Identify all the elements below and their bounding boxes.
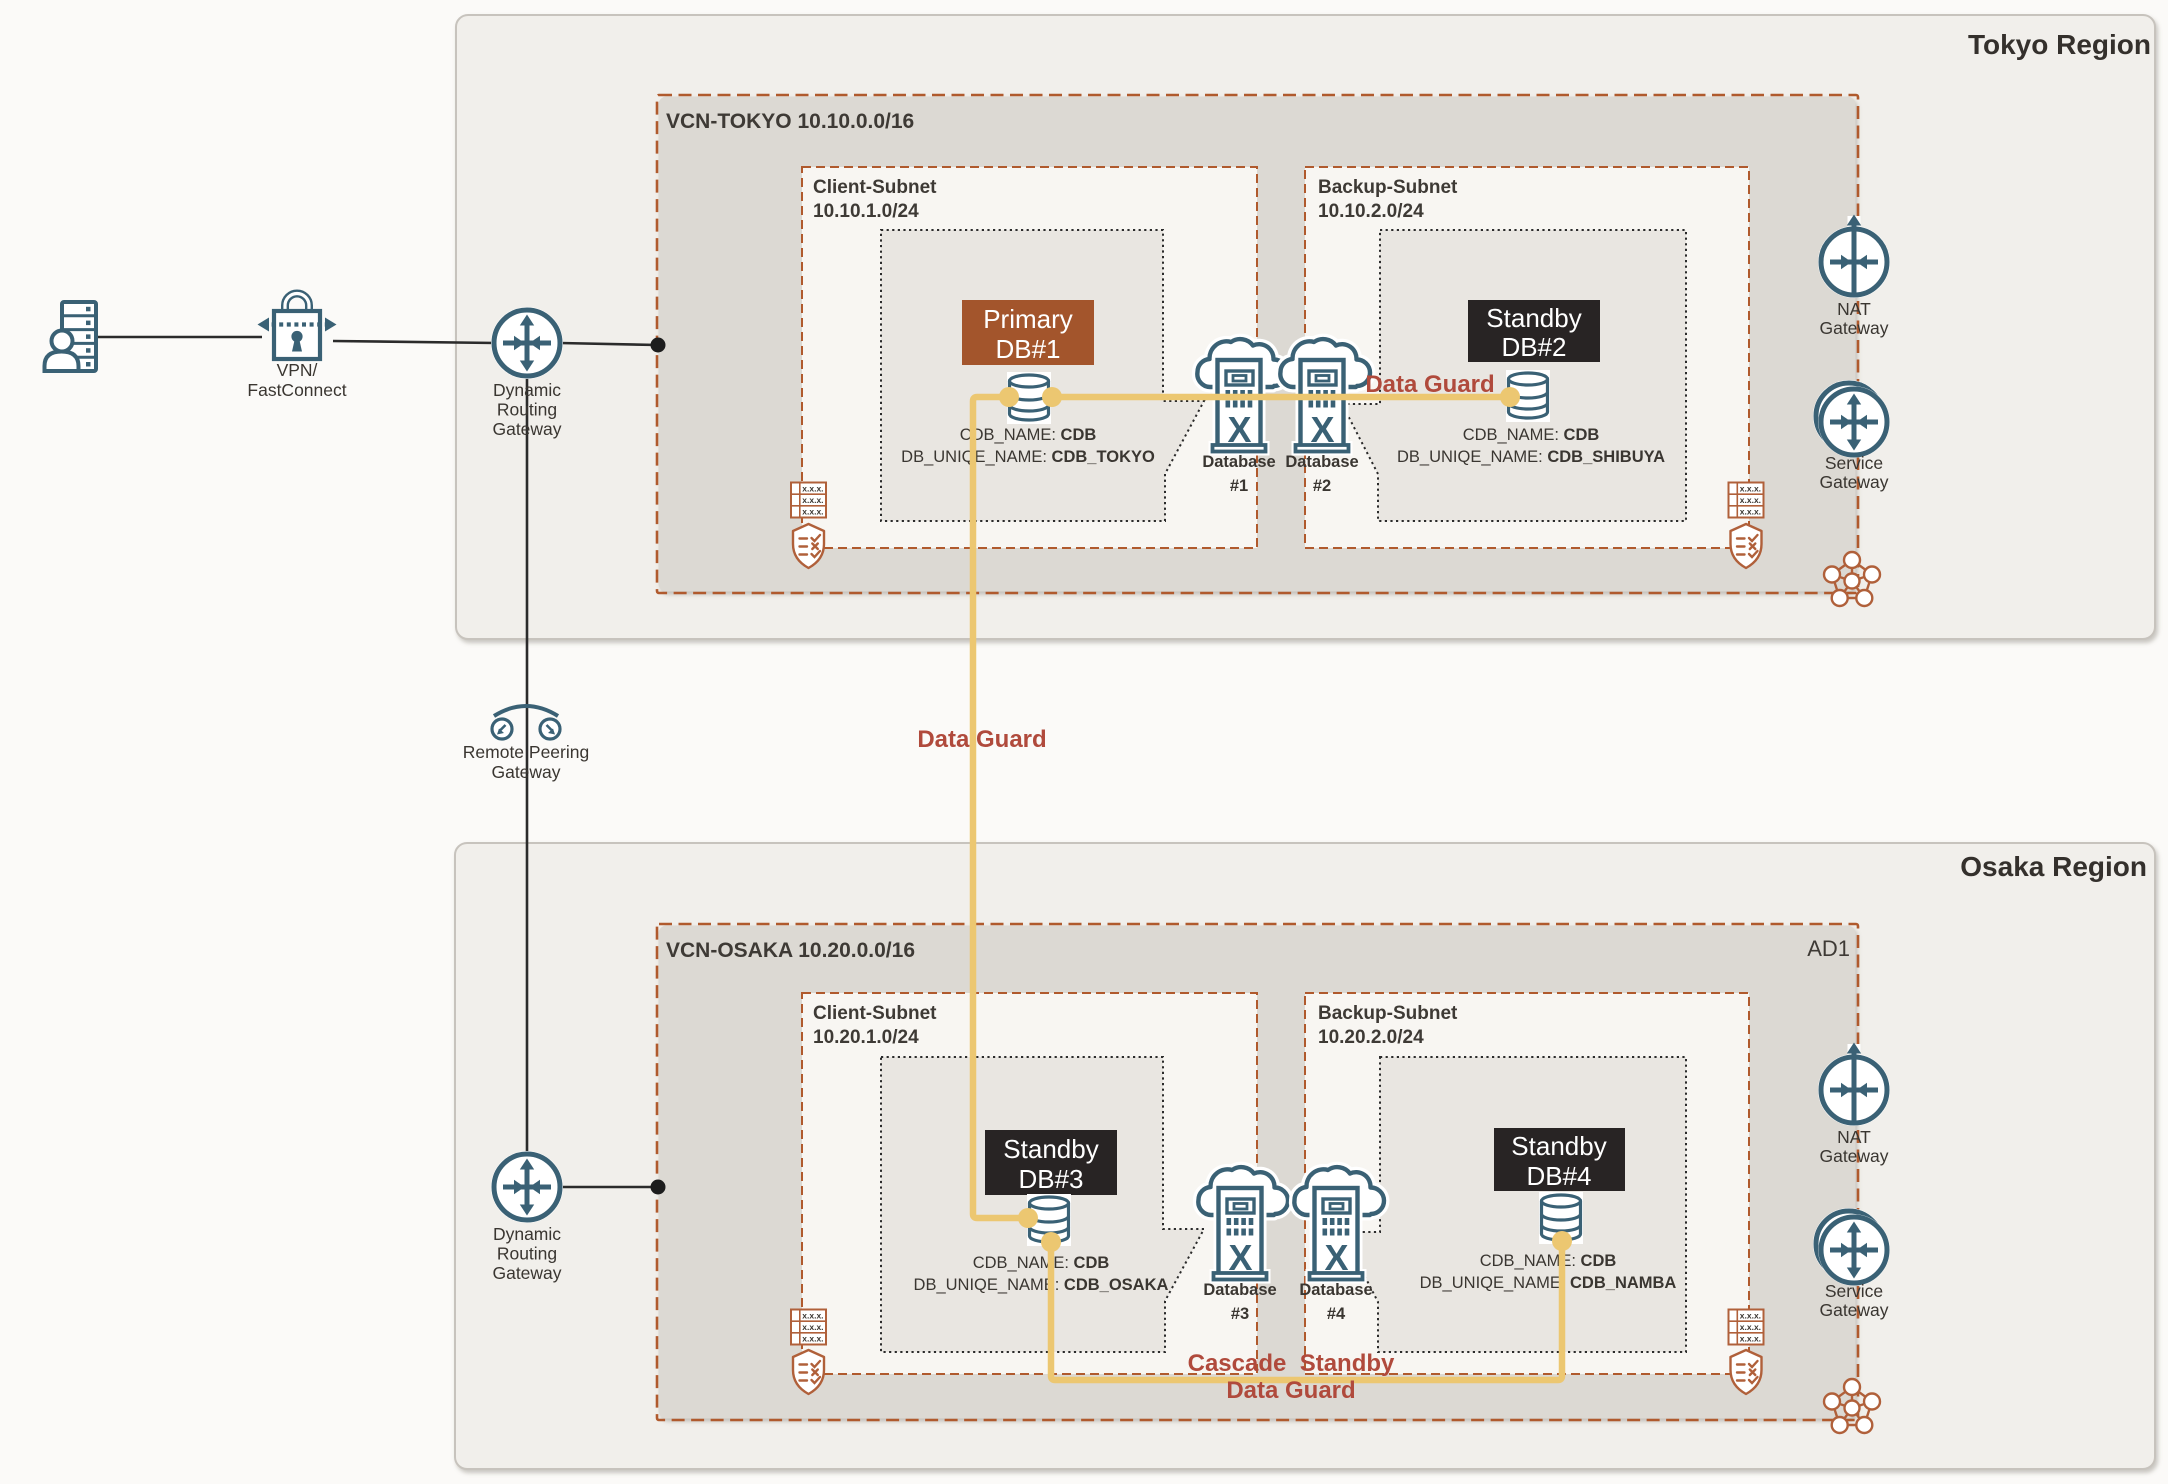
svg-text:Dynamic: Dynamic (493, 1224, 561, 1244)
svg-text:Routing: Routing (497, 400, 557, 420)
svg-text:AD1: AD1 (1807, 936, 1850, 961)
svg-text:Tokyo Region: Tokyo Region (1968, 29, 2151, 60)
svg-text:NAT: NAT (1837, 1127, 1871, 1147)
svg-text:VCN-OSAKA 10.20.0.0/16: VCN-OSAKA 10.20.0.0/16 (666, 939, 915, 962)
svg-text:Routing: Routing (497, 1244, 557, 1264)
svg-text:VPN/: VPN/ (277, 360, 318, 380)
svg-text:DB#3: DB#3 (1018, 1164, 1083, 1194)
svg-text:CDB_NAME: CDB: CDB_NAME: CDB (1463, 426, 1600, 444)
svg-text:Client-Subnet: Client-Subnet (813, 177, 937, 198)
svg-text:Gateway: Gateway (1819, 472, 1888, 492)
svg-text:Dynamic: Dynamic (493, 380, 561, 400)
svg-text:DB_UNIQE_NAME: CDB_TOKYO: DB_UNIQE_NAME: CDB_TOKYO (901, 448, 1155, 466)
svg-text:Database: Database (1299, 1281, 1372, 1299)
svg-text:Client-Subnet: Client-Subnet (813, 1003, 937, 1024)
svg-text:CDB_NAME: CDB: CDB_NAME: CDB (1480, 1252, 1617, 1270)
svg-text:DB#1: DB#1 (995, 334, 1060, 364)
svg-text:Service: Service (1825, 453, 1883, 473)
svg-text:Backup-Subnet: Backup-Subnet (1318, 1003, 1458, 1024)
svg-text:Data Guard: Data Guard (1365, 371, 1494, 398)
svg-text:Database: Database (1285, 453, 1358, 471)
svg-text:Standby: Standby (1511, 1131, 1606, 1161)
svg-text:Service: Service (1825, 1281, 1883, 1301)
svg-text:Database: Database (1203, 1281, 1276, 1299)
svg-text:CDB_NAME: CDB: CDB_NAME: CDB (960, 426, 1097, 444)
svg-text:Data Guard: Data Guard (1226, 1377, 1355, 1404)
svg-text:Gateway: Gateway (492, 1263, 561, 1283)
svg-text:Cascade Standby: Cascade Standby (1188, 1350, 1395, 1377)
svg-text:CDB_NAME: CDB: CDB_NAME: CDB (973, 1254, 1110, 1272)
svg-text:Primary: Primary (983, 304, 1073, 334)
svg-text:10.10.2.0/24: 10.10.2.0/24 (1318, 201, 1424, 222)
svg-text:Standby: Standby (1003, 1134, 1098, 1164)
svg-text:10.10.1.0/24: 10.10.1.0/24 (813, 201, 919, 222)
svg-text:Standby: Standby (1486, 303, 1581, 333)
svg-text:FastConnect: FastConnect (247, 380, 346, 400)
svg-text:DB_UNIQE_NAME: CDB_NAMBA: DB_UNIQE_NAME: CDB_NAMBA (1420, 1274, 1677, 1292)
svg-text:Data Guard: Data Guard (917, 726, 1046, 753)
svg-text:VCN-TOKYO 10.10.0.0/16: VCN-TOKYO 10.10.0.0/16 (666, 110, 914, 133)
svg-text:DB_UNIQE_NAME: CDB_SHIBUYA: DB_UNIQE_NAME: CDB_SHIBUYA (1397, 448, 1665, 466)
svg-text:#3: #3 (1231, 1305, 1249, 1323)
svg-text:Gateway: Gateway (1819, 1300, 1888, 1320)
svg-text:Database: Database (1202, 453, 1275, 471)
svg-text:Osaka Region: Osaka Region (1960, 851, 2147, 882)
svg-text:Gateway: Gateway (1819, 318, 1888, 338)
svg-text:10.20.1.0/24: 10.20.1.0/24 (813, 1027, 919, 1048)
svg-text:Remote Peering: Remote Peering (463, 742, 589, 762)
svg-text:#4: #4 (1327, 1305, 1346, 1323)
svg-text:DB#4: DB#4 (1526, 1161, 1591, 1191)
svg-text:Gateway: Gateway (492, 419, 561, 439)
svg-text:Backup-Subnet: Backup-Subnet (1318, 177, 1458, 198)
svg-text:NAT: NAT (1837, 299, 1871, 319)
svg-text:#1: #1 (1230, 477, 1248, 495)
svg-text:#2: #2 (1313, 477, 1331, 495)
svg-text:10.20.2.0/24: 10.20.2.0/24 (1318, 1027, 1424, 1048)
svg-text:Gateway: Gateway (1819, 1146, 1888, 1166)
svg-text:Gateway: Gateway (491, 762, 560, 782)
svg-text:DB_UNIQE_NAME: CDB_OSAKA: DB_UNIQE_NAME: CDB_OSAKA (914, 1276, 1169, 1294)
svg-text:DB#2: DB#2 (1501, 332, 1566, 362)
